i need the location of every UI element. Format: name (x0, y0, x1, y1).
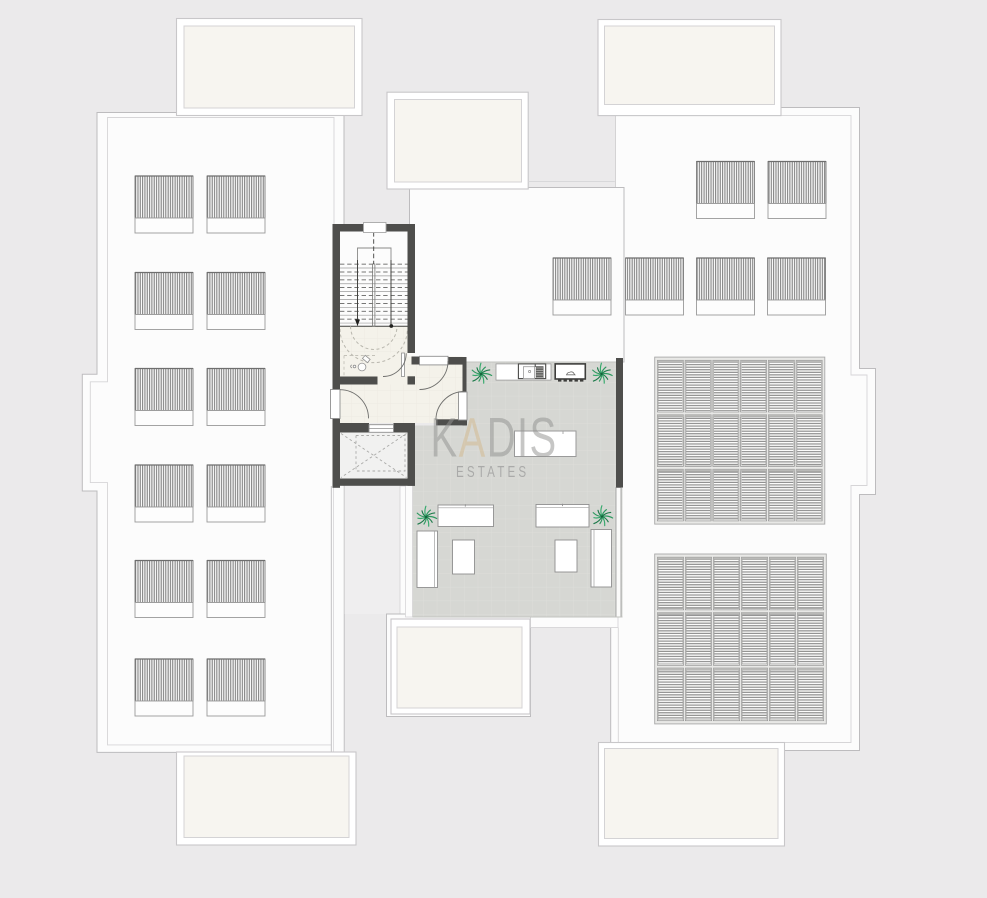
svg-text:ESTATES: ESTATES (456, 463, 529, 480)
svg-text:KADIS: KADIS (431, 407, 558, 469)
